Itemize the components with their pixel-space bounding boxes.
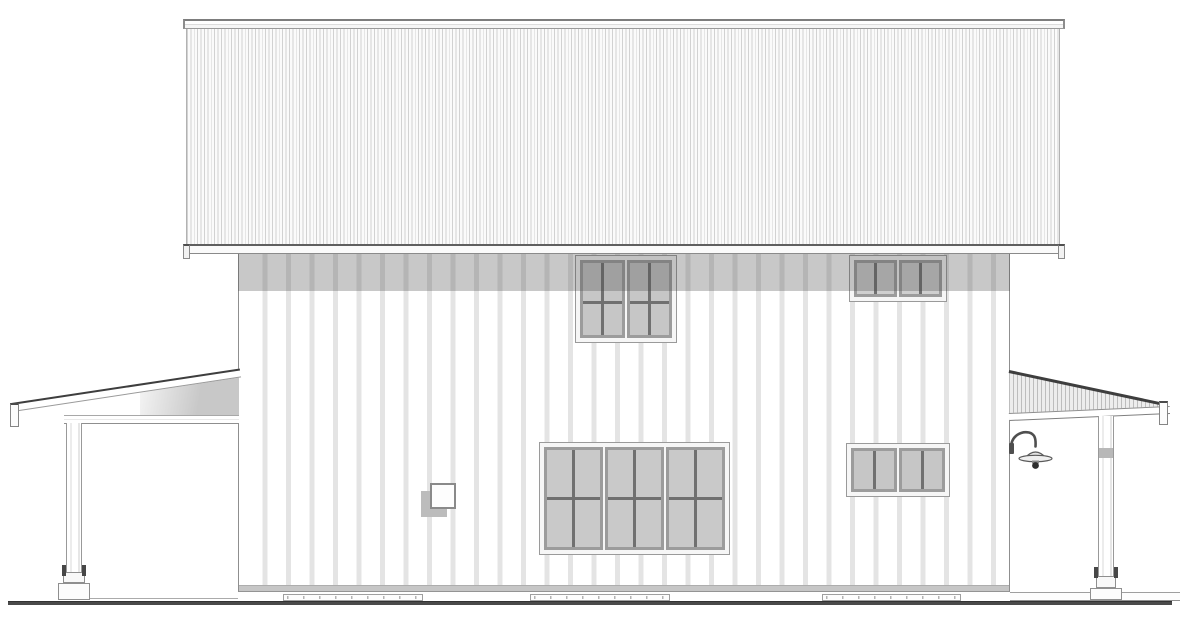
fascia-end-left <box>183 244 190 259</box>
window-sash <box>544 447 603 550</box>
window-sash <box>666 447 725 550</box>
right-post-hardware <box>1114 567 1118 578</box>
window-muntin <box>873 451 876 489</box>
window-main-floor <box>539 442 730 555</box>
window-sash <box>899 448 945 492</box>
wall-base-band <box>239 585 1009 592</box>
window-muntin <box>630 301 669 304</box>
left-porch-floor-line <box>86 598 238 599</box>
roof-surface <box>186 29 1060 244</box>
left-porch-post <box>66 423 82 573</box>
eave-shadow <box>238 254 1010 291</box>
foundation-pad <box>822 594 961 601</box>
right-porch-post <box>1098 416 1114 580</box>
ground-line <box>8 601 1172 605</box>
right-post-hardware <box>1094 567 1098 578</box>
left-porch-beam <box>64 415 239 424</box>
window-sash <box>605 447 664 550</box>
foundation-pad <box>283 594 423 601</box>
right-porch-post-base <box>1090 588 1122 600</box>
light-bulb <box>1032 462 1039 469</box>
right-post-band <box>1099 448 1113 458</box>
window-muntin <box>583 301 622 304</box>
left-porch-fascia-cap <box>10 403 19 427</box>
window-muntin <box>921 451 924 489</box>
wall-vent <box>430 483 456 509</box>
left-post-hardware <box>82 565 86 576</box>
light-arm <box>1011 432 1036 448</box>
gooseneck-light-icon <box>1002 426 1062 474</box>
left-post-hardware <box>62 565 66 576</box>
foundation-pad <box>530 594 670 601</box>
ridge-cap <box>183 19 1065 29</box>
right-post-collar <box>1096 576 1116 588</box>
eave-fascia <box>183 244 1065 254</box>
fascia-end-right <box>1058 244 1065 259</box>
window-muntin <box>547 497 600 500</box>
window-muntin <box>669 497 722 500</box>
window-muntin <box>608 497 661 500</box>
window-sash <box>851 448 897 492</box>
window-lower-right <box>846 443 950 497</box>
elevation-drawing <box>0 0 1180 627</box>
right-porch-fascia-cap <box>1159 401 1168 425</box>
left-porch-post-base <box>58 583 90 600</box>
